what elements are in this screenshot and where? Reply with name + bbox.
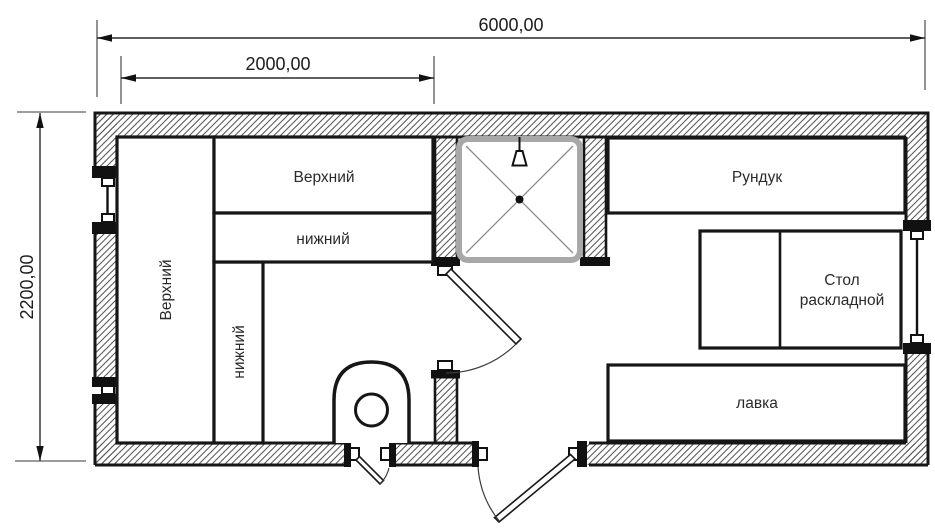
dimension-width-label: 6000,00 [478,15,543,35]
wall-left-middle [95,233,117,378]
top-shelf-upper-label: Верхний [293,169,354,186]
dimension-overall-depth: 2200,00 [15,112,86,461]
partition-shower-left [435,137,457,258]
dimension-berth-zone: 2000,00 [121,54,434,104]
arrowhead-left [121,74,136,81]
folding-table-label-line1: Стол [824,272,859,289]
entrance-door-swing-arc [478,467,500,522]
arrowhead-left [97,34,112,41]
wall-top [95,113,928,137]
window-sill-bottom [903,343,931,354]
folding-table-label-line2: раскладной [800,292,885,309]
toilet-door-leaf [356,457,384,485]
wall-pier [435,378,457,443]
locker-label: Рундук [732,169,782,186]
toilet-bowl [356,394,388,426]
shower [459,137,580,260]
window-right [903,220,931,354]
washroom-door [446,269,521,373]
window-knob [102,214,114,222]
wall-right-upper [906,113,928,221]
joint-knob [102,386,114,394]
wall-bottom-right [587,443,928,465]
washroom-door-jamb-top [431,257,460,266]
dimension-berth-label: 2000,00 [245,54,310,74]
folding-table [700,231,901,348]
washroom-door-jamb-bottom [431,370,460,379]
wall-left-upper [95,113,117,167]
partition-right-cap [580,257,610,266]
entrance-door-leaf [495,455,576,523]
window-sill-top [903,220,931,231]
toilet [334,362,409,443]
side-bunk-upper-label: Верхний [158,259,175,320]
arrowhead-right [419,74,434,81]
dimension-overall-width: 6000,00 [97,15,925,97]
floor-plan-canvas: 6000,00 2000,00 2200,00 [0,0,935,531]
window-knob [911,231,923,239]
side-bunk-lower-label: нижний [231,325,248,378]
partition-shower-right [584,137,606,258]
wall-bottom-center [396,443,472,465]
window-knob [102,178,114,186]
arrowhead-right [910,34,925,41]
jamb-knob [381,448,390,460]
washroom-door-leaf [446,269,521,344]
jamb-knob [478,448,487,460]
arrowhead-bottom [36,446,43,461]
washroom-door-swing-arc [446,344,516,373]
dimension-depth-label: 2200,00 [17,254,37,319]
arrowhead-top [36,113,43,128]
shower-drain [516,196,524,204]
jamb-knob [438,361,452,370]
floor-plan-drawing: 6000,00 2000,00 2200,00 [0,0,935,531]
entrance-door [478,455,575,523]
top-shelf-lower-label: нижний [296,231,349,248]
wall-bottom-left [95,443,345,465]
bench-label: лавка [736,395,778,412]
window-knob [911,335,923,343]
